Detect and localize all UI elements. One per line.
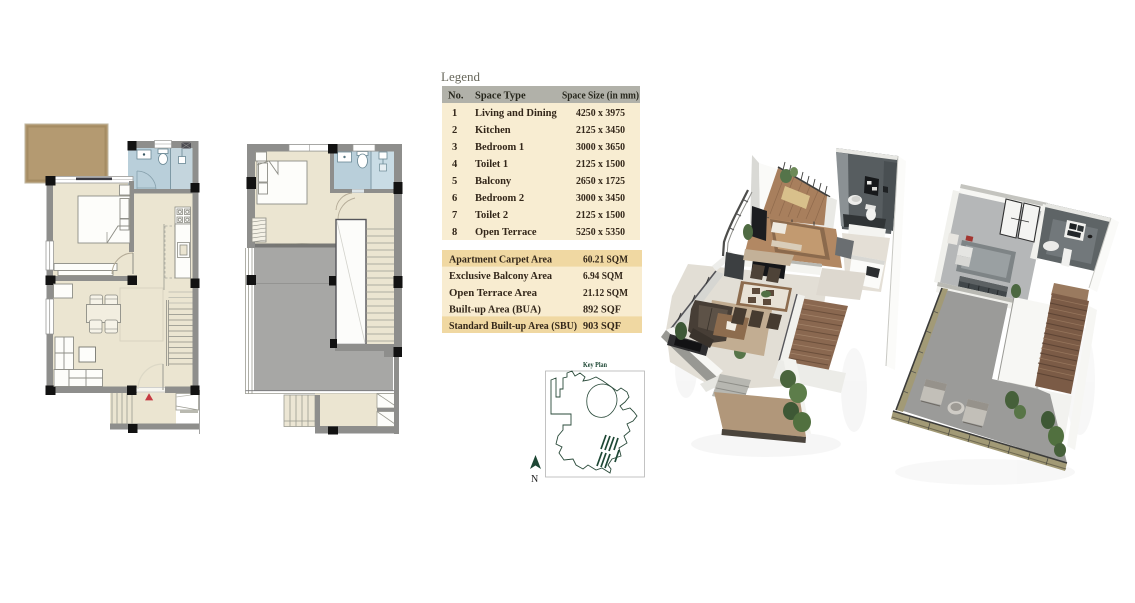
svg-text:3: 3 [452,142,457,153]
svg-text:7: 7 [452,210,457,221]
svg-text:1: 1 [452,108,457,119]
svg-text:Key Plan: Key Plan [583,360,608,369]
svg-text:Legend: Legend [441,69,480,84]
svg-text:4250 x 3975: 4250 x 3975 [576,108,625,119]
svg-text:2125 x 1500: 2125 x 1500 [576,210,625,221]
svg-text:60.21 SQM: 60.21 SQM [583,255,628,266]
svg-text:6.94 SQM: 6.94 SQM [583,271,623,282]
svg-text:Bedroom 2: Bedroom 2 [475,193,524,204]
svg-text:903 SQF: 903 SQF [583,321,621,332]
svg-text:Standard Built-up Area (SBU): Standard Built-up Area (SBU) [449,321,577,332]
svg-text:Apartment Carpet Area: Apartment Carpet Area [449,255,553,266]
svg-text:Open Terrace Area: Open Terrace Area [449,288,538,299]
svg-text:3000 x 3450: 3000 x 3450 [576,193,625,204]
svg-text:Open Terrace: Open Terrace [475,227,537,238]
svg-text:Space Size (in mm): Space Size (in mm) [562,91,639,102]
svg-text:892 SQF: 892 SQF [583,304,621,315]
svg-text:Living and Dining: Living and Dining [475,108,557,119]
svg-text:Space Type: Space Type [475,91,526,102]
svg-text:2125 x 3450: 2125 x 3450 [576,125,625,136]
svg-text:2: 2 [452,125,457,136]
svg-text:8: 8 [452,227,457,238]
svg-text:Exclusive Balcony Area: Exclusive Balcony Area [449,271,553,282]
svg-text:5250 x 5350: 5250 x 5350 [576,227,625,238]
svg-text:N: N [531,474,538,485]
svg-text:Built-up Area (BUA): Built-up Area (BUA) [449,304,541,315]
svg-text:3000 x 3650: 3000 x 3650 [576,142,625,153]
svg-text:6: 6 [452,193,457,204]
svg-text:Balcony: Balcony [475,176,512,187]
svg-text:21.12 SQM: 21.12 SQM [583,288,628,299]
svg-text:2650 x 1725: 2650 x 1725 [576,176,625,187]
svg-text:4: 4 [452,159,458,170]
svg-text:No.: No. [448,91,464,102]
svg-text:Toilet 1: Toilet 1 [475,159,508,170]
svg-text:5: 5 [452,176,457,187]
svg-text:Toilet 2: Toilet 2 [475,210,508,221]
svg-text:Kitchen: Kitchen [475,125,511,136]
svg-text:Bedroom 1: Bedroom 1 [475,142,524,153]
svg-text:2125 x 1500: 2125 x 1500 [576,159,625,170]
